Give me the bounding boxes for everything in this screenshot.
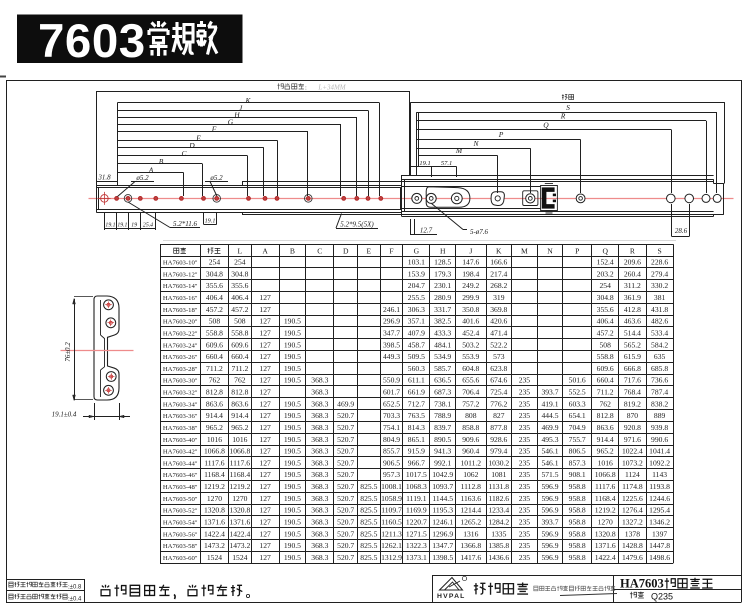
svg-text:1066.8: 1066.8 [229, 447, 250, 456]
svg-text:235: 235 [519, 423, 531, 432]
svg-text:HA7603: HA7603 [620, 577, 664, 591]
svg-text:235: 235 [519, 435, 531, 444]
svg-text:235: 235 [519, 506, 531, 515]
svg-text:1112.8: 1112.8 [461, 482, 482, 491]
svg-text:147.6: 147.6 [462, 258, 479, 267]
svg-text:Q: Q [602, 246, 608, 255]
svg-text:355.6: 355.6 [597, 305, 614, 314]
svg-text:533.4: 533.4 [651, 328, 668, 337]
svg-text:558.8: 558.8 [597, 352, 614, 361]
svg-text:19.1: 19.1 [105, 222, 115, 228]
svg-text:A: A [262, 246, 268, 255]
svg-text:560.3: 560.3 [408, 364, 425, 373]
svg-text:1008.1: 1008.1 [381, 482, 402, 491]
svg-text:368.3: 368.3 [311, 517, 328, 526]
svg-text:152.4: 152.4 [597, 258, 614, 267]
svg-text:1320.8: 1320.8 [595, 529, 616, 538]
svg-text:HA7603-60": HA7603-60" [163, 555, 198, 562]
svg-text:712.7: 712.7 [408, 399, 425, 408]
svg-text:1117.6: 1117.6 [230, 458, 251, 467]
svg-text:522.2: 522.2 [490, 340, 507, 349]
svg-text:HA7603-46": HA7603-46" [163, 472, 198, 479]
svg-text:B: B [290, 246, 295, 255]
svg-text:603.3: 603.3 [569, 399, 586, 408]
svg-text:76±0.2: 76±0.2 [64, 342, 72, 362]
svg-text:979.4: 979.4 [490, 447, 507, 456]
svg-text:550.9: 550.9 [383, 376, 400, 385]
svg-text:463.6: 463.6 [624, 317, 641, 326]
svg-text:1143: 1143 [652, 470, 667, 479]
svg-text:HA7603-48": HA7603-48" [163, 484, 198, 491]
svg-text:127: 127 [259, 328, 271, 337]
svg-text:5.2*9.5(5X): 5.2*9.5(5X) [340, 220, 374, 228]
svg-text:235: 235 [519, 388, 531, 397]
svg-text:1119.1: 1119.1 [406, 494, 427, 503]
svg-text:127: 127 [259, 447, 271, 456]
svg-text:K: K [496, 246, 502, 255]
svg-text:1422.4: 1422.4 [595, 553, 616, 562]
svg-text:190.5: 190.5 [284, 411, 301, 420]
svg-text:711.2: 711.2 [597, 388, 614, 397]
svg-text:F: F [389, 246, 393, 255]
svg-text:1371.6: 1371.6 [595, 541, 616, 550]
svg-text:604.8: 604.8 [462, 364, 479, 373]
svg-text:268.2: 268.2 [490, 281, 507, 290]
svg-text:762: 762 [209, 376, 221, 385]
svg-text:1016: 1016 [598, 458, 613, 467]
svg-text:1144.5: 1144.5 [432, 494, 453, 503]
svg-text:1284.2: 1284.2 [488, 517, 509, 526]
svg-text:D: D [188, 141, 195, 150]
svg-text:361.9: 361.9 [624, 293, 641, 302]
svg-text:F: F [211, 124, 217, 133]
svg-text:812.8: 812.8 [206, 388, 223, 397]
svg-text:762: 762 [234, 376, 246, 385]
svg-text:863.6: 863.6 [231, 399, 248, 408]
svg-text:1265.2: 1265.2 [460, 517, 481, 526]
svg-text:127: 127 [259, 482, 271, 491]
svg-text:571.5: 571.5 [541, 470, 558, 479]
svg-text:235: 235 [519, 399, 531, 408]
svg-text:127: 127 [259, 541, 271, 550]
svg-text:1320.8: 1320.8 [204, 506, 225, 515]
svg-text:HA7603-20": HA7603-20" [163, 319, 198, 326]
svg-text:304.8: 304.8 [206, 269, 223, 278]
svg-text:757.2: 757.2 [462, 399, 479, 408]
svg-text:406.4: 406.4 [206, 293, 223, 302]
svg-text:280.9: 280.9 [434, 293, 451, 302]
svg-text:825.5: 825.5 [360, 541, 377, 550]
svg-text:471.4: 471.4 [490, 328, 507, 337]
svg-text:HA7603-24": HA7603-24" [163, 342, 198, 349]
svg-text:660.4: 660.4 [231, 352, 248, 361]
svg-text:717.6: 717.6 [624, 376, 641, 385]
svg-text:319: 319 [493, 293, 505, 302]
svg-text:573: 573 [493, 352, 505, 361]
svg-text:666.8: 666.8 [624, 364, 641, 373]
svg-text:19.1: 19.1 [117, 222, 127, 228]
svg-text:M: M [455, 146, 463, 155]
svg-text:HA7603-28": HA7603-28" [163, 366, 198, 373]
svg-text:711.2: 711.2 [231, 364, 248, 373]
svg-text:1366.8: 1366.8 [460, 541, 481, 550]
svg-text:347.7: 347.7 [383, 328, 400, 337]
svg-text:209.6: 209.6 [624, 258, 641, 267]
svg-text:1160.5: 1160.5 [381, 517, 402, 526]
svg-text:368.3: 368.3 [311, 447, 328, 456]
svg-text:965.2: 965.2 [597, 447, 614, 456]
svg-text:296.9: 296.9 [383, 317, 400, 326]
svg-text:706.4: 706.4 [462, 388, 479, 397]
svg-text:839.7: 839.7 [434, 423, 451, 432]
svg-text:L: L [238, 246, 243, 255]
svg-text:127: 127 [259, 506, 271, 515]
svg-text:457.2: 457.2 [231, 305, 248, 314]
svg-text:444.5: 444.5 [541, 411, 558, 420]
svg-text:452.4: 452.4 [462, 328, 479, 337]
svg-text:928.6: 928.6 [490, 435, 507, 444]
svg-text:368.3: 368.3 [311, 435, 328, 444]
svg-text:1296.9: 1296.9 [432, 529, 453, 538]
svg-text:235: 235 [519, 482, 531, 491]
svg-text:235: 235 [519, 470, 531, 479]
svg-text:HA7603-50": HA7603-50" [163, 496, 198, 503]
svg-text:484.1: 484.1 [434, 340, 451, 349]
svg-text:520.7: 520.7 [337, 506, 354, 515]
svg-text:738.1: 738.1 [434, 399, 451, 408]
svg-text:235: 235 [519, 376, 531, 385]
svg-text:704.9: 704.9 [569, 423, 586, 432]
svg-text:838.2: 838.2 [651, 399, 668, 408]
svg-text:28.6: 28.6 [675, 227, 688, 235]
svg-text:228.6: 228.6 [651, 258, 668, 267]
svg-text:1233.4: 1233.4 [488, 506, 509, 515]
svg-text:299.9: 299.9 [462, 293, 479, 302]
svg-text:Q235: Q235 [651, 591, 673, 601]
svg-text:260.4: 260.4 [624, 269, 641, 278]
svg-text:407.9: 407.9 [408, 328, 425, 337]
svg-text:H: H [440, 246, 446, 255]
svg-text:787.4: 787.4 [651, 388, 668, 397]
svg-text:685.8: 685.8 [651, 364, 668, 373]
svg-text:368.3: 368.3 [311, 411, 328, 420]
svg-text:992.1: 992.1 [434, 458, 451, 467]
svg-text:508: 508 [234, 317, 246, 326]
svg-text:433.3: 433.3 [434, 328, 451, 337]
svg-text:M: M [521, 246, 528, 255]
svg-text:1262.1: 1262.1 [381, 541, 402, 550]
svg-text:520.7: 520.7 [337, 494, 354, 503]
svg-text:958.8: 958.8 [569, 541, 586, 550]
svg-text:1131.8: 1131.8 [488, 482, 509, 491]
svg-text:808: 808 [465, 411, 477, 420]
svg-text:127: 127 [259, 388, 271, 397]
svg-text:520.7: 520.7 [337, 553, 354, 562]
svg-text:190.5: 190.5 [284, 458, 301, 467]
svg-text:306.3: 306.3 [408, 305, 425, 314]
svg-text:520.7: 520.7 [337, 541, 354, 550]
svg-text:1016: 1016 [232, 435, 247, 444]
svg-text:1017.5: 1017.5 [406, 470, 427, 479]
svg-text:1373.1: 1373.1 [406, 553, 427, 562]
svg-text:971.6: 971.6 [624, 435, 641, 444]
svg-text:1117.6: 1117.6 [204, 458, 225, 467]
svg-text:369.8: 369.8 [490, 305, 507, 314]
svg-text:190.5: 190.5 [284, 482, 301, 491]
svg-text:368.3: 368.3 [311, 399, 328, 408]
svg-text:655.6: 655.6 [462, 376, 479, 385]
svg-text:687.3: 687.3 [434, 388, 451, 397]
svg-text:863.6: 863.6 [597, 423, 614, 432]
svg-text::: : [305, 85, 307, 92]
svg-text:HA7603-22": HA7603-22" [163, 330, 198, 337]
svg-text:127: 127 [259, 517, 271, 526]
svg-text:217.4: 217.4 [490, 269, 507, 278]
svg-text:495.3: 495.3 [541, 435, 558, 444]
svg-text:31.8: 31.8 [97, 174, 111, 182]
svg-text:661.9: 661.9 [408, 388, 425, 397]
svg-text:965.2: 965.2 [231, 423, 248, 432]
svg-text:19.1: 19.1 [205, 218, 216, 225]
svg-text:HA7603-34": HA7603-34" [163, 401, 198, 408]
svg-text:R: R [560, 112, 566, 121]
svg-text:ø5.2: ø5.2 [209, 174, 223, 182]
svg-text:814.3: 814.3 [408, 423, 425, 432]
svg-text:190.5: 190.5 [284, 470, 301, 479]
svg-text:1168.4: 1168.4 [230, 470, 251, 479]
svg-text:609.6: 609.6 [231, 340, 248, 349]
svg-text:1422.4: 1422.4 [229, 529, 250, 538]
svg-text:330.2: 330.2 [651, 281, 668, 290]
svg-text:865.1: 865.1 [408, 435, 425, 444]
svg-text:776.2: 776.2 [490, 399, 507, 408]
svg-text:279.4: 279.4 [651, 269, 668, 278]
svg-text:19.1: 19.1 [419, 160, 430, 167]
svg-text:1168.4: 1168.4 [595, 494, 616, 503]
svg-text:S: S [566, 103, 570, 112]
svg-text:1316: 1316 [463, 529, 478, 538]
svg-text:L+34MM: L+34MM [317, 84, 346, 92]
svg-text:1320.8: 1320.8 [229, 506, 250, 515]
svg-text:558.8: 558.8 [206, 328, 223, 337]
svg-text:825.5: 825.5 [360, 494, 377, 503]
svg-text:19: 19 [131, 222, 137, 228]
svg-text:382.5: 382.5 [434, 317, 451, 326]
svg-text:127: 127 [259, 376, 271, 385]
svg-text:1371.6: 1371.6 [229, 517, 250, 526]
svg-text:509.5: 509.5 [408, 352, 425, 361]
svg-text:1219.2: 1219.2 [204, 482, 225, 491]
svg-text:501.6: 501.6 [569, 376, 586, 385]
svg-text:1042.9: 1042.9 [432, 470, 453, 479]
svg-text:596.9: 596.9 [541, 482, 558, 491]
svg-text:1378: 1378 [625, 529, 640, 538]
svg-text:1473.2: 1473.2 [229, 541, 250, 550]
svg-text:198.4: 198.4 [462, 269, 479, 278]
svg-text:190.5: 190.5 [284, 423, 301, 432]
svg-text:235: 235 [519, 517, 531, 526]
svg-text:596.9: 596.9 [541, 541, 558, 550]
svg-text:914.4: 914.4 [597, 435, 614, 444]
svg-text:5-ø7.6: 5-ø7.6 [470, 228, 489, 236]
svg-text:965.2: 965.2 [206, 423, 223, 432]
svg-text:235: 235 [519, 541, 531, 550]
svg-text:127: 127 [259, 305, 271, 314]
svg-text:1327.2: 1327.2 [622, 517, 643, 526]
svg-text:725.4: 725.4 [490, 388, 507, 397]
svg-text:508: 508 [600, 340, 612, 349]
svg-text:1163.6: 1163.6 [460, 494, 481, 503]
svg-text:585.7: 585.7 [434, 364, 451, 373]
svg-text:103.1: 103.1 [408, 258, 425, 267]
svg-text:254: 254 [600, 281, 612, 290]
svg-text:534.9: 534.9 [434, 352, 451, 361]
svg-text:1041.4: 1041.4 [649, 447, 670, 456]
svg-text:1073.2: 1073.2 [622, 458, 643, 467]
svg-text:596.9: 596.9 [541, 494, 558, 503]
svg-text:1436.6: 1436.6 [488, 553, 509, 562]
svg-text:906.5: 906.5 [383, 458, 400, 467]
svg-text:357.1: 357.1 [408, 317, 425, 326]
svg-text:635: 635 [654, 352, 666, 361]
svg-text:1068.3: 1068.3 [406, 482, 427, 491]
svg-text:958.8: 958.8 [569, 553, 586, 562]
svg-text:615.9: 615.9 [624, 352, 641, 361]
svg-text:HA7603-38": HA7603-38" [163, 425, 198, 432]
svg-text:K: K [244, 96, 251, 105]
svg-text:636.5: 636.5 [434, 376, 451, 385]
svg-text:1271.5: 1271.5 [406, 529, 427, 538]
svg-text:1417.6: 1417.6 [460, 553, 481, 562]
svg-text:449.3: 449.3 [383, 352, 400, 361]
svg-text:190.5: 190.5 [284, 553, 301, 562]
svg-text:908.1: 908.1 [569, 470, 586, 479]
svg-text:190.5: 190.5 [284, 435, 301, 444]
svg-text:1447.8: 1447.8 [649, 541, 670, 550]
svg-text:711.2: 711.2 [206, 364, 223, 373]
svg-text:584.2: 584.2 [651, 340, 668, 349]
svg-text::±0.8: :±0.8 [68, 584, 82, 590]
svg-text:406.4: 406.4 [231, 293, 248, 302]
svg-text:190.5: 190.5 [284, 447, 301, 456]
svg-text:1346.2: 1346.2 [649, 517, 670, 526]
svg-text:914.4: 914.4 [206, 411, 223, 420]
svg-text:520.7: 520.7 [337, 423, 354, 432]
svg-text:127: 127 [259, 529, 271, 538]
svg-text:368.3: 368.3 [311, 470, 328, 479]
svg-text:1220.7: 1220.7 [406, 517, 427, 526]
svg-text:1397: 1397 [652, 529, 667, 538]
svg-text:420.6: 420.6 [490, 317, 507, 326]
svg-text:1270: 1270 [232, 494, 247, 503]
svg-text:12.7: 12.7 [420, 227, 433, 235]
svg-text:958.8: 958.8 [569, 482, 586, 491]
svg-text:57.1: 57.1 [441, 160, 452, 167]
svg-text:HVPAL: HVPAL [437, 593, 466, 600]
svg-text:1169.9: 1169.9 [406, 506, 427, 515]
svg-text:304.8: 304.8 [597, 293, 614, 302]
svg-text:1479.6: 1479.6 [622, 553, 643, 562]
svg-text:596.9: 596.9 [541, 553, 558, 562]
svg-text:1066.8: 1066.8 [204, 447, 225, 456]
svg-text:601.7: 601.7 [383, 388, 400, 397]
svg-text:609.6: 609.6 [597, 364, 614, 373]
svg-text:B: B [159, 157, 164, 166]
svg-text:1371.6: 1371.6 [204, 517, 225, 526]
svg-text:806.5: 806.5 [569, 447, 586, 456]
svg-text:1225.6: 1225.6 [622, 494, 643, 503]
svg-text:1295.4: 1295.4 [649, 506, 670, 515]
svg-text:1276.4: 1276.4 [622, 506, 643, 515]
svg-text:N: N [547, 246, 553, 255]
svg-text:863.6: 863.6 [206, 399, 223, 408]
svg-text:623.8: 623.8 [490, 364, 507, 373]
svg-text:1030.2: 1030.2 [488, 458, 509, 467]
svg-text:889: 889 [654, 411, 666, 420]
svg-text:1193.8: 1193.8 [649, 482, 670, 491]
svg-text:609.6: 609.6 [206, 340, 223, 349]
svg-text:966.7: 966.7 [408, 458, 425, 467]
svg-text:514.4: 514.4 [624, 328, 641, 337]
svg-text:1422.4: 1422.4 [204, 529, 225, 538]
svg-text:1058.9: 1058.9 [381, 494, 402, 503]
svg-text:HA7603-32": HA7603-32" [163, 390, 198, 397]
svg-text:255.5: 255.5 [408, 293, 425, 302]
svg-text:1016: 1016 [207, 435, 222, 444]
svg-text:127: 127 [259, 352, 271, 361]
svg-text:235: 235 [519, 447, 531, 456]
svg-text:127: 127 [259, 317, 271, 326]
svg-text:960.4: 960.4 [462, 447, 479, 456]
svg-text:1244.6: 1244.6 [649, 494, 670, 503]
svg-text:HA7603-30": HA7603-30" [163, 378, 198, 385]
svg-text:235: 235 [519, 553, 531, 562]
svg-text:660.4: 660.4 [206, 352, 223, 361]
svg-text:1398.5: 1398.5 [432, 553, 453, 562]
svg-text:Q: Q [543, 121, 549, 130]
svg-text:857.3: 857.3 [569, 458, 586, 467]
svg-text:596.9: 596.9 [541, 506, 558, 515]
svg-text:HA7603-18": HA7603-18" [163, 307, 198, 314]
svg-text:736.6: 736.6 [651, 376, 668, 385]
svg-text:825.5: 825.5 [360, 482, 377, 491]
svg-text:941.3: 941.3 [434, 447, 451, 456]
svg-text:1066.8: 1066.8 [595, 470, 616, 479]
svg-text:190.5: 190.5 [284, 494, 301, 503]
svg-text:HA7603-42": HA7603-42" [163, 449, 198, 456]
svg-text:368.3: 368.3 [311, 423, 328, 432]
svg-text:660.4: 660.4 [597, 376, 614, 385]
svg-text:HA7603-36": HA7603-36" [163, 413, 198, 420]
svg-text:957.3: 957.3 [383, 470, 400, 479]
svg-text:654.1: 654.1 [569, 411, 586, 420]
svg-text:1524: 1524 [207, 553, 222, 562]
svg-text:431.8: 431.8 [651, 305, 668, 314]
svg-text:203.2: 203.2 [597, 269, 614, 278]
svg-text:703.3: 703.3 [383, 411, 400, 420]
svg-text:812.8: 812.8 [231, 388, 248, 397]
svg-text:419.1: 419.1 [541, 399, 558, 408]
svg-text:355.6: 355.6 [206, 281, 223, 290]
svg-text:1473.2: 1473.2 [204, 541, 225, 550]
svg-text:819.2: 819.2 [624, 399, 641, 408]
svg-text:381: 381 [654, 293, 666, 302]
svg-text:755.7: 755.7 [569, 435, 586, 444]
svg-text:596.9: 596.9 [541, 529, 558, 538]
svg-text:858.8: 858.8 [462, 423, 479, 432]
svg-text:458.7: 458.7 [408, 340, 425, 349]
svg-text:1312.9: 1312.9 [381, 553, 402, 562]
